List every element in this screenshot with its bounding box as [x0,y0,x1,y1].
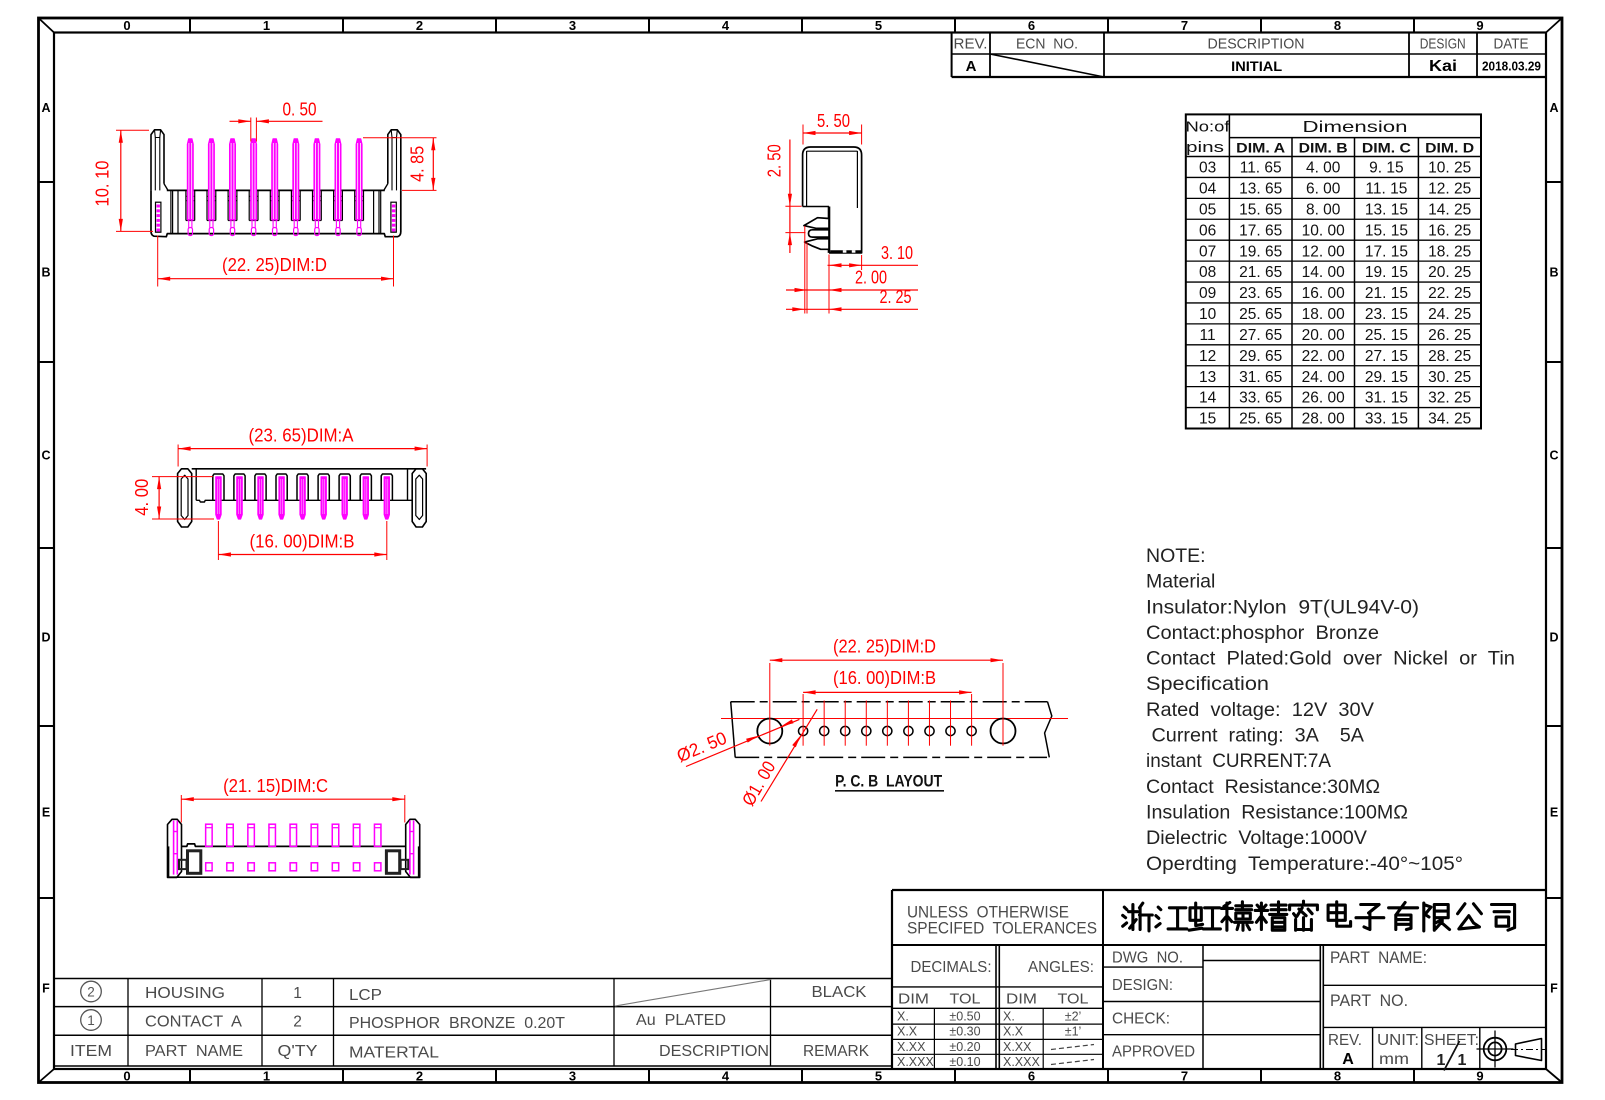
svg-text:Contact:phosphor Bronze: Contact:phosphor Bronze [1146,622,1379,644]
svg-text:A: A [41,101,50,115]
svg-text:30. 25: 30. 25 [1428,369,1471,386]
svg-text:10. 10: 10. 10 [93,161,113,207]
svg-text:(23. 65)DIM:A: (23. 65)DIM:A [249,426,354,446]
svg-text:DESCRIPTION: DESCRIPTION [659,1043,769,1060]
svg-text:21. 65: 21. 65 [1239,264,1282,281]
svg-text:25. 15: 25. 15 [1365,327,1408,344]
svg-text:25. 65: 25. 65 [1239,411,1282,428]
svg-text:14. 25: 14. 25 [1428,201,1471,218]
svg-text:20. 25: 20. 25 [1428,264,1471,281]
svg-text:X.: X. [1003,1009,1015,1023]
svg-text:Specification: Specification [1146,673,1269,695]
svg-text:(21. 15)DIM:C: (21. 15)DIM:C [223,776,328,796]
svg-text:1: 1 [293,985,302,1002]
svg-text:3: 3 [569,18,576,33]
svg-text:Rated voltage: 12V 30V: Rated voltage: 12V 30V [1146,699,1374,721]
svg-text:10. 25: 10. 25 [1428,160,1471,177]
svg-text:Contact Plated:Gold over Ni: Contact Plated:Gold over Nickel or Tin [1146,648,1515,670]
svg-text:±2’: ±2’ [1065,1009,1082,1023]
svg-text:Kai: Kai [1429,58,1457,75]
svg-text:X.X: X.X [1003,1025,1024,1039]
svg-text:22. 25: 22. 25 [1428,285,1471,302]
svg-text:APPROVED: APPROVED [1112,1044,1195,1061]
svg-text:DESCRIPTION: DESCRIPTION [1208,37,1305,53]
svg-text:1: 1 [263,1069,270,1084]
svg-text:12: 12 [1199,348,1216,365]
svg-text:Au PLATED: Au PLATED [636,1012,726,1029]
svg-text:1: 1 [87,1013,95,1028]
svg-text:SHEET:: SHEET: [1424,1032,1479,1049]
svg-text:X.XXX: X.XXX [1003,1055,1040,1069]
svg-text:±0.50: ±0.50 [949,1009,980,1023]
svg-text:DESIGN: DESIGN [1420,37,1466,53]
svg-text:20. 00: 20. 00 [1302,327,1345,344]
svg-text:Insulation Resistance:100MΩ: Insulation Resistance:100MΩ [1146,802,1408,824]
svg-text:14: 14 [1199,390,1217,407]
svg-text:13. 65: 13. 65 [1239,181,1282,198]
svg-text:32. 25: 32. 25 [1428,390,1471,407]
svg-text:9: 9 [1476,18,1483,33]
svg-text:F: F [1550,982,1558,996]
svg-text:P. C. B LAYOUT: P. C. B LAYOUT [835,772,942,791]
svg-text:5. 50: 5. 50 [817,111,850,131]
svg-text:TOL: TOL [950,992,981,1008]
svg-text:E: E [1550,806,1558,820]
svg-text:4. 85: 4. 85 [408,146,428,182]
svg-text:4: 4 [722,18,730,33]
svg-text:E: E [42,806,50,820]
svg-text:31. 65: 31. 65 [1239,369,1282,386]
svg-text:28. 25: 28. 25 [1428,348,1471,365]
svg-text:instant CURRENT:7A: instant CURRENT:7A [1146,750,1331,772]
svg-text:X.XX: X.XX [897,1040,926,1054]
svg-text:15: 15 [1199,411,1216,428]
svg-text:0: 0 [123,18,130,33]
svg-text:ANGLES:: ANGLES: [1028,959,1094,976]
svg-text:7: 7 [1181,18,1188,33]
svg-text:ITEM: ITEM [70,1043,112,1060]
svg-text:DIM. B: DIM. B [1299,140,1348,156]
svg-text:A: A [966,58,977,75]
svg-text:09: 09 [1199,285,1216,302]
svg-text:F: F [42,982,50,996]
svg-text:Material: Material [1146,571,1215,593]
svg-text:2: 2 [416,1069,423,1084]
svg-text:(16. 00)DIM:B: (16. 00)DIM:B [250,531,355,551]
svg-text:21. 15: 21. 15 [1365,285,1408,302]
svg-text:Operdting Temperature:-40°~10: Operdting Temperature:-40°~105° [1146,853,1463,875]
svg-text:No:of: No:of [1186,119,1231,136]
svg-text:15. 65: 15. 65 [1239,201,1282,218]
svg-text:2. 50: 2. 50 [765,144,785,177]
svg-text:11: 11 [1200,327,1216,344]
svg-text:±0.10: ±0.10 [949,1055,980,1069]
svg-text:1: 1 [1458,1052,1467,1069]
svg-text:26. 00: 26. 00 [1302,390,1345,407]
svg-text:DATE: DATE [1494,37,1529,53]
svg-text:PHOSPHOR BRONZE 0.20T: PHOSPHOR BRONZE 0.20T [349,1015,566,1032]
svg-text:19. 15: 19. 15 [1365,264,1408,281]
svg-text:DIM: DIM [898,992,929,1008]
svg-text:DESIGN:: DESIGN: [1112,977,1173,994]
svg-text:18. 25: 18. 25 [1428,243,1471,260]
svg-text:PART NAME:: PART NAME: [1330,949,1427,967]
svg-text:0: 0 [123,1069,130,1084]
svg-text:33. 65: 33. 65 [1239,390,1282,407]
svg-text:16. 00: 16. 00 [1302,285,1345,302]
svg-text:27. 15: 27. 15 [1365,348,1408,365]
svg-text:23. 65: 23. 65 [1239,285,1282,302]
svg-text:7: 7 [1181,1069,1188,1084]
svg-text:5: 5 [875,1069,882,1084]
svg-text:±0.30: ±0.30 [949,1025,980,1039]
svg-text:DWG NO.: DWG NO. [1112,950,1183,967]
svg-text:X.XXX: X.XXX [897,1055,934,1069]
svg-text:Dielectric Voltage:1000V: Dielectric Voltage:1000V [1146,827,1367,849]
svg-text:11. 65: 11. 65 [1240,160,1282,177]
svg-text:08: 08 [1199,264,1216,281]
svg-text:SPECIFED TOLERANCES: SPECIFED TOLERANCES [907,920,1097,938]
svg-text:Insulator:Nylon 9T(UL94V-0): Insulator:Nylon 9T(UL94V-0) [1146,596,1419,618]
svg-text:mm: mm [1379,1051,1409,1068]
svg-text:C: C [41,449,50,463]
svg-text:TOL: TOL [1058,992,1089,1008]
svg-text:9. 15: 9. 15 [1369,160,1403,177]
svg-text:INITIAL: INITIAL [1231,58,1282,74]
svg-text:27. 65: 27. 65 [1239,327,1282,344]
svg-text:REMARK: REMARK [803,1043,870,1060]
svg-text:12. 25: 12. 25 [1428,181,1471,198]
svg-text:X.XX: X.XX [1003,1040,1032,1054]
svg-text:D: D [41,631,50,645]
svg-text:06: 06 [1199,222,1216,239]
svg-text:PART NO.: PART NO. [1330,992,1408,1010]
svg-text:B: B [1549,266,1558,280]
svg-text:±1’: ±1’ [1065,1025,1082,1039]
svg-text:5: 5 [875,18,882,33]
svg-text:03: 03 [1199,160,1216,177]
svg-text:UNIT:: UNIT: [1377,1032,1419,1049]
svg-text:10. 00: 10. 00 [1302,222,1345,239]
svg-text:24. 00: 24. 00 [1302,369,1345,386]
svg-text:CONTACT A: CONTACT A [145,1014,243,1031]
svg-text:REV.: REV. [954,37,988,53]
svg-text:A: A [1549,101,1558,115]
svg-text:8. 00: 8. 00 [1306,201,1341,218]
svg-text:Contact Resistance:30MΩ: Contact Resistance:30MΩ [1146,776,1380,798]
svg-text:4. 00: 4. 00 [132,479,152,516]
svg-text:34. 25: 34. 25 [1428,411,1471,428]
svg-text:X.: X. [897,1009,909,1023]
svg-text:NOTE:: NOTE: [1146,545,1206,567]
svg-text:A: A [1342,1051,1354,1068]
svg-text:4: 4 [722,1069,730,1084]
svg-text:25. 65: 25. 65 [1239,306,1282,323]
svg-text:23. 15: 23. 15 [1365,306,1408,323]
svg-text:LCP: LCP [349,987,382,1004]
svg-text:31. 15: 31. 15 [1365,390,1408,407]
svg-text:6. 00: 6. 00 [1306,181,1341,198]
svg-text:19. 65: 19. 65 [1239,243,1282,260]
svg-text:29. 15: 29. 15 [1365,369,1408,386]
svg-text:Q'TY: Q'TY [278,1043,318,1060]
svg-text:4. 00: 4. 00 [1306,160,1341,177]
svg-text:3: 3 [569,1069,576,1084]
svg-text:2018.03.29: 2018.03.29 [1482,59,1541,74]
svg-text:11. 15: 11. 15 [1365,181,1407,198]
svg-text:12. 00: 12. 00 [1302,243,1345,260]
svg-text:3. 10: 3. 10 [881,243,913,263]
svg-text:DECIMALS:: DECIMALS: [911,959,992,976]
svg-text:BLACK: BLACK [812,984,868,1001]
svg-text:DIM: DIM [1006,992,1037,1008]
svg-text:DIM. D: DIM. D [1425,140,1474,156]
svg-text:X.X: X.X [897,1025,918,1039]
svg-text:17. 15: 17. 15 [1365,243,1408,260]
svg-text:15. 15: 15. 15 [1365,222,1408,239]
svg-text:6: 6 [1028,1069,1035,1084]
svg-text:8: 8 [1334,1069,1341,1084]
svg-text:0. 50: 0. 50 [283,100,317,120]
svg-text:D: D [1549,631,1558,645]
svg-text:13: 13 [1199,369,1216,386]
svg-text:26. 25: 26. 25 [1428,327,1471,344]
svg-text:29. 65: 29. 65 [1239,348,1282,365]
svg-text:DIM. C: DIM. C [1362,140,1411,156]
svg-text:17. 65: 17. 65 [1239,222,1282,239]
svg-text:DIM. A: DIM. A [1236,140,1285,156]
svg-text:8: 8 [1334,18,1341,33]
svg-text:Dimension: Dimension [1303,119,1408,136]
svg-text:MATERTAL: MATERTAL [349,1045,439,1062]
svg-text:6: 6 [1028,18,1035,33]
svg-text:REV.: REV. [1328,1032,1362,1049]
svg-text:C: C [1549,449,1558,463]
svg-text:14. 00: 14. 00 [1302,264,1345,281]
svg-text:33. 15: 33. 15 [1365,411,1408,428]
svg-text:pins: pins [1186,139,1224,156]
svg-text:28. 00: 28. 00 [1302,411,1345,428]
svg-text:Current rating: 3A 5A: Current rating: 3A 5A [1146,725,1364,747]
svg-text:2: 2 [416,18,423,33]
svg-text:CHECK:: CHECK: [1112,1011,1170,1028]
svg-text:(16. 00)DIM:B: (16. 00)DIM:B [833,668,936,688]
svg-text:ECN NO.: ECN NO. [1016,37,1078,53]
svg-text:(22. 25)DIM:D: (22. 25)DIM:D [222,255,327,275]
svg-text:04: 04 [1199,181,1217,198]
svg-text:24. 25: 24. 25 [1428,306,1471,323]
svg-text:PART NAME: PART NAME [145,1043,243,1060]
svg-text:1: 1 [1437,1052,1446,1069]
svg-text:18. 00: 18. 00 [1302,306,1345,323]
svg-text:22. 00: 22. 00 [1302,348,1345,365]
svg-text:(22. 25)DIM:D: (22. 25)DIM:D [833,636,936,656]
svg-text:2: 2 [87,985,95,1000]
svg-text:±0.20: ±0.20 [949,1040,980,1054]
svg-text:B: B [41,266,50,280]
svg-text:10: 10 [1199,306,1217,323]
svg-text:16. 25: 16. 25 [1428,222,1471,239]
svg-text:2. 00: 2. 00 [855,267,887,287]
svg-text:2. 25: 2. 25 [880,287,912,307]
svg-text:13. 15: 13. 15 [1365,201,1408,218]
svg-text:1: 1 [263,18,270,33]
svg-text:05: 05 [1199,201,1216,218]
svg-text:9: 9 [1476,1069,1483,1084]
svg-text:HOUSING: HOUSING [145,985,225,1002]
svg-text:2: 2 [293,1014,302,1031]
svg-text:07: 07 [1199,243,1216,260]
